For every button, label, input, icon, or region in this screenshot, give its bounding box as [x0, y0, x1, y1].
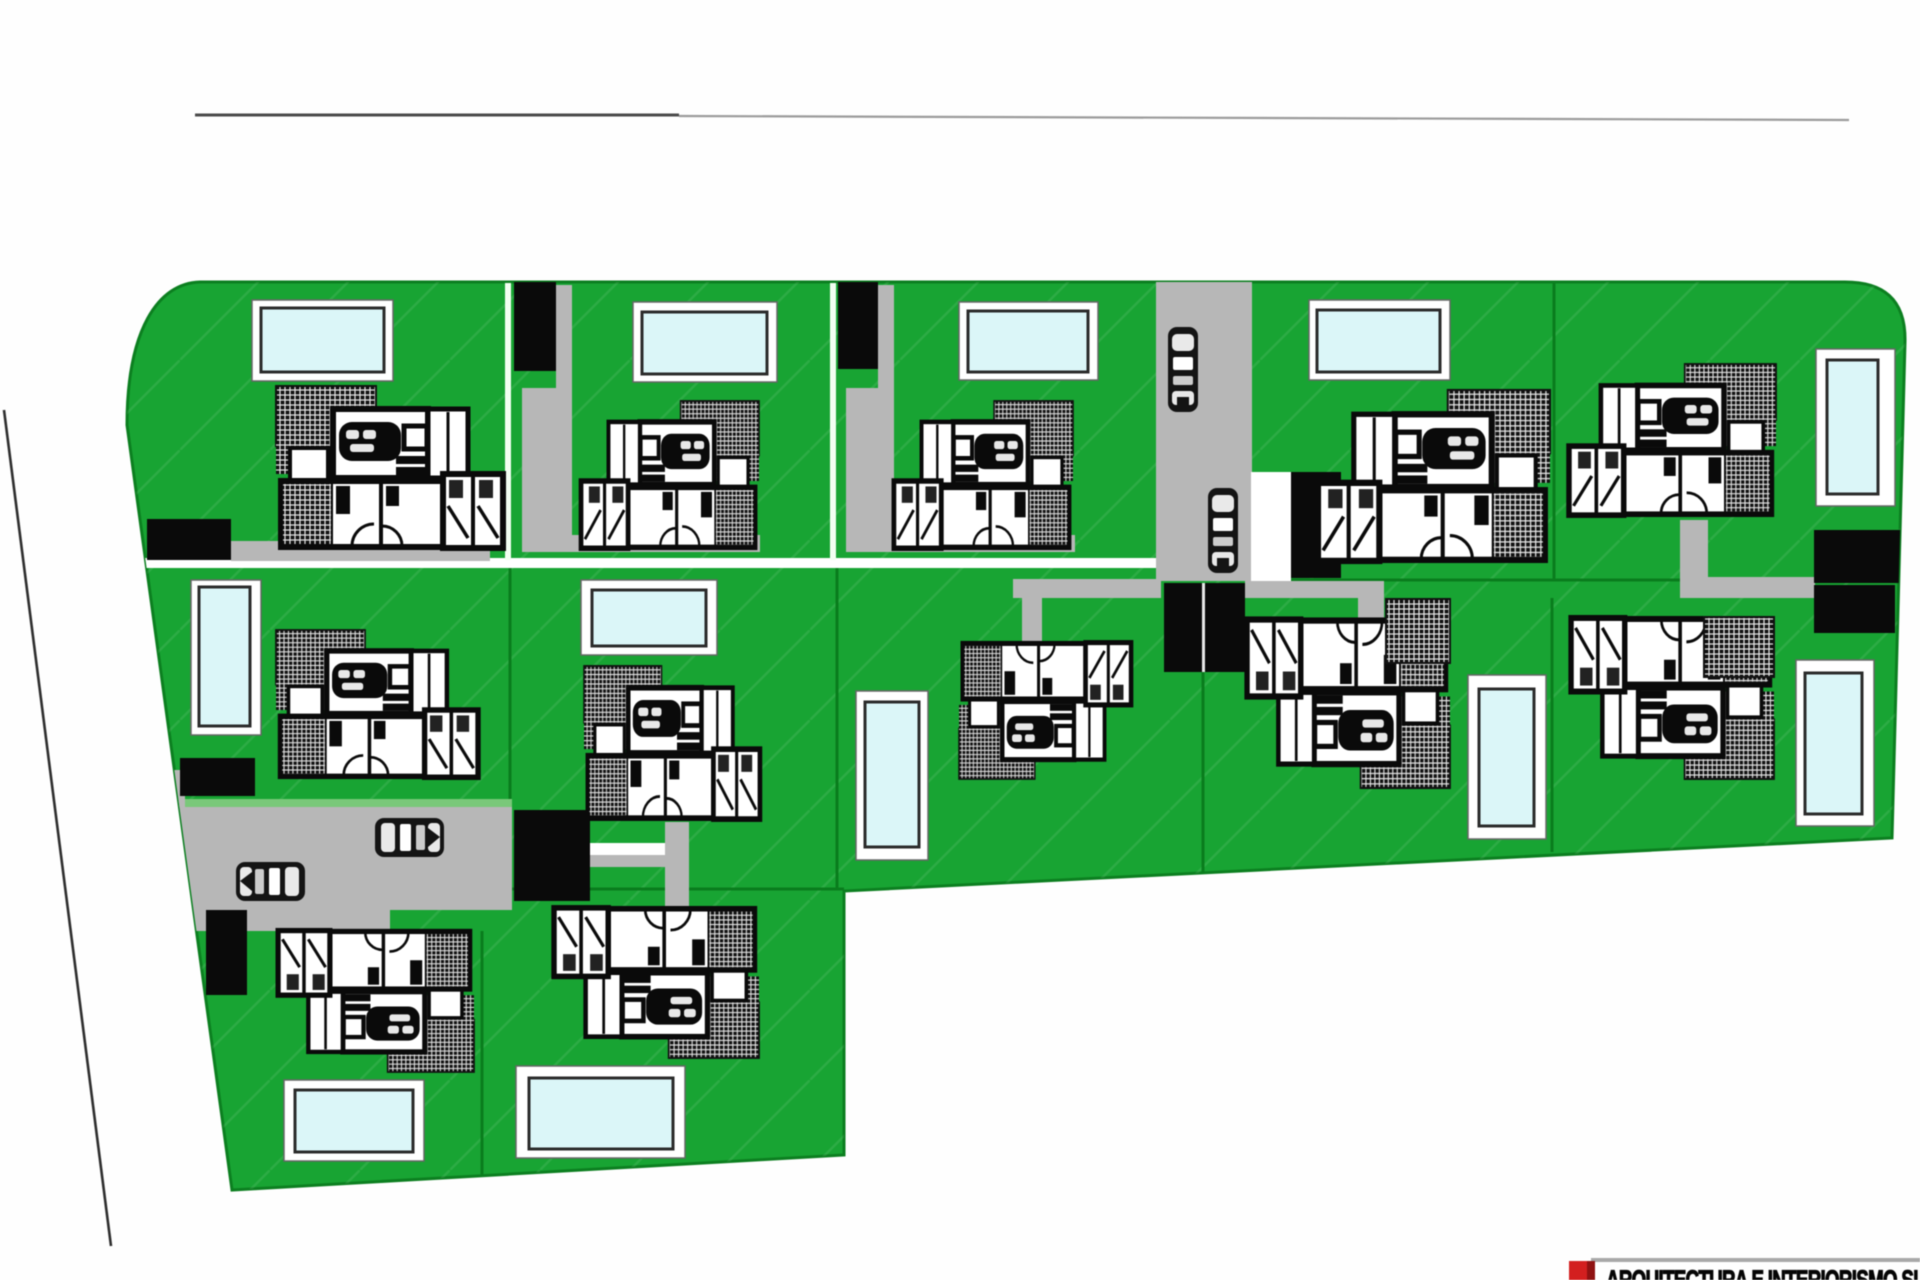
svg-text:ARQUITECTURA E INTERIORISMO SL: ARQUITECTURA E INTERIORISMO SL [1606, 1265, 1920, 1280]
